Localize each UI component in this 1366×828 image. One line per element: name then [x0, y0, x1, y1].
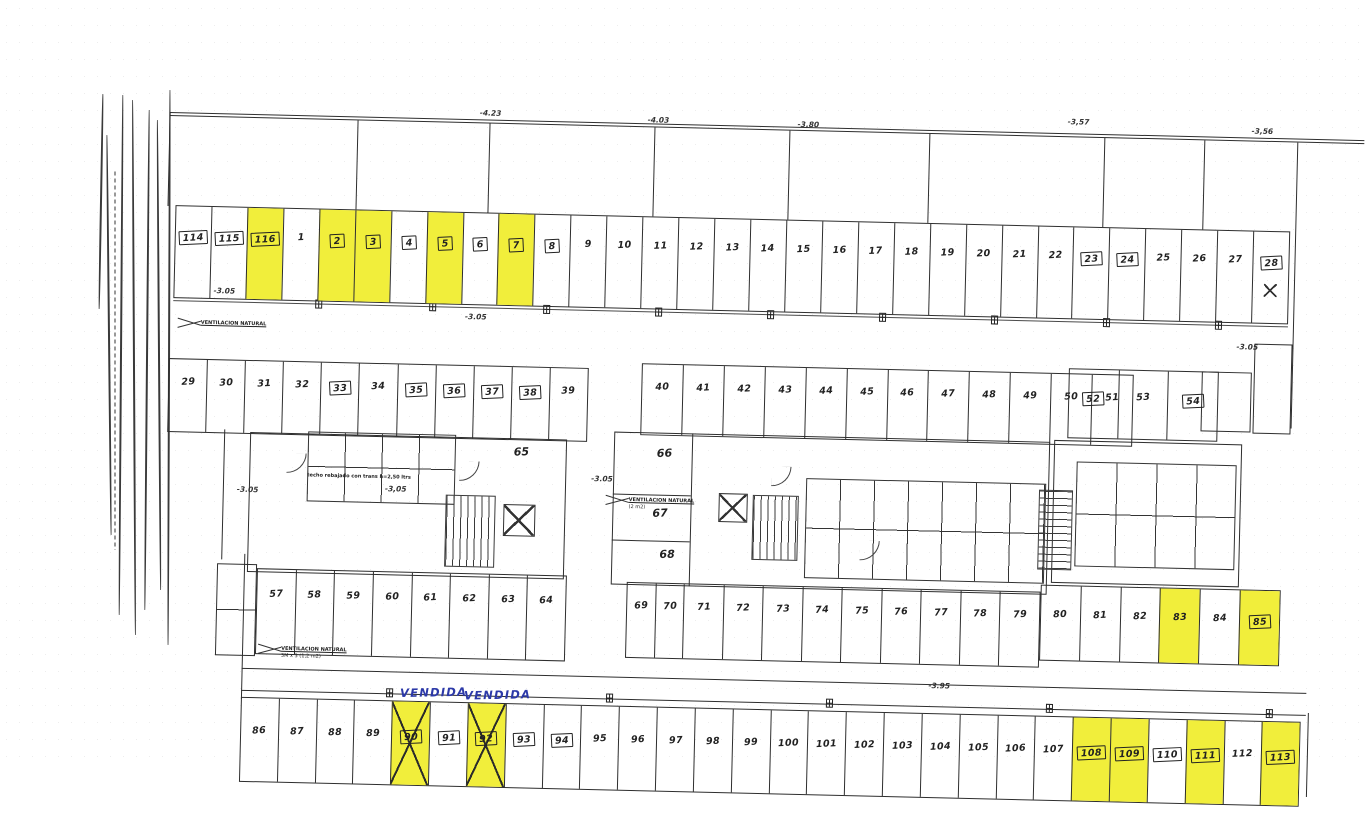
parking-stall-59: 59 — [332, 571, 373, 656]
parking-stall-105: 105 — [958, 715, 998, 799]
storage-rooms-grid — [307, 431, 457, 504]
stall-number: 58 — [308, 590, 322, 600]
parking-stall-83: 83 — [1159, 588, 1201, 663]
parking-stall-88: 88 — [315, 700, 355, 784]
parking-stall-38: 38 — [510, 367, 550, 440]
elevation-label-text: -3,05 — [385, 484, 407, 494]
stall-number: 36 — [443, 383, 466, 398]
column-marker — [826, 699, 833, 708]
bottom-right-wall — [1306, 713, 1309, 797]
stall-number: 87 — [290, 727, 304, 737]
parking-stall-36: 36 — [434, 365, 474, 438]
stall-number: 111 — [1190, 748, 1220, 763]
stall-row-top-1-28: 1141151161234567891011121314151617181920… — [173, 205, 1290, 324]
parking-stall-116: 116 — [245, 208, 283, 300]
parking-stall-62: 62 — [448, 574, 489, 659]
stall-number: 70 — [663, 602, 677, 612]
elevation-label-text: -4.03 — [648, 115, 670, 125]
stall-number: 24 — [1116, 252, 1139, 267]
stall-number: 54 — [1182, 394, 1205, 409]
stall-number: 26 — [1192, 254, 1206, 264]
parking-stall-60: 60 — [371, 572, 412, 657]
stall-number: 107 — [1043, 745, 1064, 755]
stall-number: 34 — [371, 382, 385, 392]
parking-stall-11: 11 — [640, 217, 678, 309]
stall-number: 83 — [1173, 613, 1187, 623]
note-ventilation-text: VENTILACION NATURAL — [201, 320, 267, 328]
note-ventilation-subtext: 3M x 3 (1,2 m2) — [281, 652, 347, 660]
stall-number: 96 — [631, 735, 645, 745]
parking-stall-41: 41 — [681, 365, 724, 436]
stall-number: 18 — [905, 247, 919, 257]
stall-number: 41 — [696, 383, 710, 393]
scan-line — [98, 94, 103, 309]
stall-number: 110 — [1152, 747, 1182, 762]
stall-number: 101 — [816, 739, 837, 749]
parking-stall-113: 113 — [1260, 722, 1300, 806]
stall-number: 52 — [1082, 391, 1105, 406]
stall-number: 74 — [815, 605, 829, 615]
elevator-shaft — [718, 493, 748, 523]
scan-line — [144, 110, 150, 610]
parking-stall-18: 18 — [892, 223, 930, 315]
stall-number: 19 — [941, 248, 955, 258]
storage-rooms-grid — [1074, 461, 1236, 570]
parking-stall-90: 90 — [390, 701, 430, 785]
parking-stall-85: 85 — [1238, 590, 1280, 665]
parking-stall-21: 21 — [1000, 226, 1038, 318]
parking-stall-73: 73 — [761, 586, 802, 661]
note-ventilation: VENTILACION NATURAL(2 m2) — [628, 497, 694, 512]
parking-stall-78: 78 — [959, 591, 1000, 666]
parking-stall-89: 89 — [352, 701, 392, 785]
stall-number: 28 — [1260, 255, 1283, 270]
stall-number: 86 — [252, 726, 266, 736]
parking-stall-45: 45 — [845, 369, 888, 440]
stall-number: 5 — [437, 236, 453, 251]
parking-stall-26: 26 — [1179, 230, 1217, 322]
parking-stall-5: 5 — [425, 212, 463, 304]
stall-row-bottom-86-113: 8687888990919293949596979899100101102103… — [239, 697, 1301, 807]
elevation-label-text: -4.23 — [480, 108, 502, 118]
stall-number: 63 — [501, 595, 515, 605]
room-label-65: 65 — [514, 446, 530, 457]
stall-number: 22 — [1048, 251, 1062, 261]
parking-stall-54: 54 — [1167, 372, 1218, 441]
parking-stall-30: 30 — [205, 360, 245, 433]
stall-number: 32 — [295, 380, 309, 390]
stall-number: 112 — [1232, 749, 1253, 759]
parking-stall-97: 97 — [655, 708, 695, 792]
stall-number: 81 — [1093, 611, 1107, 621]
parking-stall-33: 33 — [320, 363, 360, 436]
parking-stall-93: 93 — [504, 704, 544, 788]
stall-number: 40 — [655, 382, 669, 392]
stall-number: 97 — [668, 736, 682, 746]
stall-number: 9 — [585, 240, 592, 250]
parking-stall-103: 103 — [882, 713, 922, 797]
parking-stall-77: 77 — [919, 590, 960, 665]
parking-stall-14: 14 — [748, 220, 786, 312]
wall-stud — [652, 127, 655, 216]
utility-cell — [215, 563, 257, 656]
stall-number: 16 — [833, 246, 847, 256]
stall-number: 85 — [1248, 614, 1271, 629]
parking-stall-44: 44 — [804, 368, 847, 439]
elevation-label: -3.05 — [237, 486, 259, 494]
stall-number: 99 — [744, 738, 758, 748]
stall-number: 76 — [894, 607, 908, 617]
parking-stall-1: 1 — [281, 209, 319, 301]
room-label-66: 66 — [657, 448, 673, 459]
elevation-label: -3,05 — [385, 485, 407, 493]
parking-stall-92: 92 — [466, 703, 506, 787]
parking-stall-104: 104 — [920, 714, 960, 798]
parking-stall-107: 107 — [1033, 717, 1073, 801]
parking-stall-32: 32 — [281, 362, 321, 435]
stall-number: 72 — [736, 603, 750, 613]
parking-stall-101: 101 — [806, 711, 846, 795]
parking-stall-70: 70 — [654, 584, 684, 659]
parking-stall-94: 94 — [542, 705, 582, 789]
stall-number: 78 — [973, 609, 987, 619]
parking-stall-34: 34 — [358, 364, 398, 437]
parking-stall-19: 19 — [928, 224, 966, 316]
stall-number: 79 — [1013, 610, 1027, 620]
stairs — [1037, 490, 1073, 571]
stall-number: 59 — [346, 591, 360, 601]
parking-stall-29: 29 — [168, 359, 207, 432]
elevation-label-text: -3,56 — [1251, 126, 1273, 136]
stall-number: 3 — [365, 234, 381, 249]
elevation-label: -3,57 — [1068, 118, 1090, 126]
parking-stall-96: 96 — [617, 707, 657, 791]
parking-stall-86: 86 — [240, 698, 279, 782]
parking-stall-81: 81 — [1079, 587, 1121, 662]
stall-number: 108 — [1077, 745, 1107, 760]
stall-number: 69 — [634, 601, 648, 611]
parking-stall-99: 99 — [731, 709, 771, 793]
parking-stall-15: 15 — [784, 221, 822, 313]
parking-stall-80: 80 — [1040, 586, 1081, 661]
parking-stall-48: 48 — [968, 372, 1011, 443]
right-boundary-wall — [1291, 143, 1299, 429]
stall-number: 48 — [982, 390, 996, 400]
handwritten-vendida: VENDIDA — [400, 687, 467, 700]
stall-number: 10 — [617, 240, 631, 250]
stall-number: 47 — [941, 389, 955, 399]
parking-stall-49: 49 — [1008, 373, 1051, 444]
stall-number: 116 — [250, 232, 280, 247]
stall-number: 17 — [869, 246, 883, 256]
room-label-65-text: 65 — [514, 445, 530, 458]
stall-number: 77 — [934, 608, 948, 618]
parking-stall-8: 8 — [533, 215, 571, 307]
stall-number: 61 — [423, 593, 437, 603]
parking-stall-76: 76 — [880, 589, 921, 664]
elevation-label: -3,80 — [798, 121, 820, 129]
parking-stall-6: 6 — [461, 213, 499, 305]
stall-number: 71 — [697, 602, 711, 612]
parking-stall-53: 53 — [1117, 370, 1168, 439]
stall-number: 8 — [545, 239, 561, 254]
parking-stall-42: 42 — [722, 366, 765, 437]
elevation-label: -3.05 — [1236, 343, 1258, 351]
stall-number: 80 — [1053, 610, 1067, 620]
stall-number: 13 — [725, 243, 739, 253]
room-label-68-text: 68 — [659, 548, 675, 561]
parking-stall-79: 79 — [998, 592, 1039, 667]
parking-stall-109: 109 — [1109, 718, 1149, 802]
wall-stud — [927, 134, 930, 223]
parking-stall-100: 100 — [768, 710, 808, 794]
scanned-sheet: 1141151161234567891011121314151617181920… — [0, 0, 1366, 768]
parking-stall-64: 64 — [525, 576, 566, 661]
scan-line — [106, 135, 112, 535]
note-ventilation: VENTILACION NATURAL — [201, 320, 267, 328]
stall-number: 84 — [1213, 614, 1227, 624]
parking-stall-82: 82 — [1119, 588, 1161, 663]
parking-stall-39: 39 — [548, 368, 588, 441]
stall-number: 1 — [297, 233, 304, 243]
parking-stall-111: 111 — [1184, 720, 1224, 804]
parking-stall-17: 17 — [856, 222, 894, 314]
column-marker — [606, 693, 613, 702]
stall-number: 109 — [1114, 746, 1144, 761]
stall-number: 12 — [689, 242, 703, 252]
parking-stall-102: 102 — [844, 712, 884, 796]
stairs — [751, 495, 799, 561]
parking-stall-98: 98 — [693, 709, 733, 793]
stall-number: 57 — [269, 589, 283, 599]
note-ventilation: VENTILACION NATURAL3M x 3 (1,2 m2) — [281, 646, 347, 661]
parking-stall-47: 47 — [927, 371, 970, 442]
parking-stall-31: 31 — [243, 361, 283, 434]
stall-number: 102 — [854, 740, 875, 750]
column-marker — [1046, 704, 1053, 713]
stall-number: 92 — [475, 731, 498, 746]
stall-row-69-79: 6970717273747576777879 — [625, 582, 1041, 668]
parking-stall-87: 87 — [277, 699, 317, 783]
wall-stud — [355, 120, 358, 209]
parking-stall-16: 16 — [820, 221, 858, 313]
stall-number: 91 — [437, 730, 460, 745]
stall-number: 113 — [1266, 750, 1296, 765]
parking-stall-37: 37 — [472, 366, 512, 439]
parking-stall-69: 69 — [626, 583, 655, 658]
parking-stall-61: 61 — [409, 573, 450, 658]
elevation-label-text: -3.05 — [213, 286, 235, 296]
stall-number: 44 — [819, 386, 833, 396]
stall-row-29-39: 2930313233343536373839 — [167, 358, 589, 442]
handwritten-vendida-text: VENDIDA — [464, 687, 531, 702]
stall-row-40-51: 404142434445464748495051 — [640, 363, 1134, 447]
room-label-68: 68 — [659, 549, 675, 560]
elevation-label: -3.05 — [591, 475, 613, 483]
column-marker — [386, 688, 393, 697]
elevation-label-text: -3,57 — [1068, 117, 1090, 127]
stall-number: 6 — [473, 237, 489, 252]
stall-number: 104 — [930, 742, 951, 752]
stall-row-52-54: 525354 — [1067, 368, 1219, 442]
stall-number: 94 — [551, 733, 574, 748]
parking-stall-74: 74 — [801, 587, 842, 662]
column-marker — [1266, 709, 1273, 718]
stall-number: 29 — [181, 377, 195, 387]
elevation-label-text: -3.05 — [591, 474, 613, 484]
elevation-label-text: -3.05 — [1236, 342, 1258, 352]
parking-stall-91: 91 — [428, 702, 468, 786]
parking-stall-115: 115 — [209, 207, 247, 299]
wall-stud — [487, 124, 490, 213]
elevation-label: -3.05 — [465, 313, 487, 321]
parking-stall-25: 25 — [1143, 229, 1181, 321]
elevation-label: -4.23 — [480, 109, 502, 117]
stall-number: 35 — [405, 382, 428, 397]
stall-number: 46 — [901, 388, 915, 398]
stall-number: 93 — [513, 732, 536, 747]
stall-number: 2 — [329, 234, 345, 249]
stall-number: 75 — [855, 606, 869, 616]
stall-number: 39 — [562, 386, 576, 396]
stall-number: 15 — [797, 245, 811, 255]
parking-stall-108: 108 — [1071, 717, 1111, 801]
elevation-label-text: -3.95 — [928, 681, 950, 691]
stall-number: 31 — [257, 379, 271, 389]
stall-number: 106 — [1005, 744, 1026, 754]
stall-number: 62 — [462, 594, 476, 604]
stall-number: 42 — [737, 384, 751, 394]
stall-number: 64 — [539, 596, 553, 606]
scan-line — [132, 100, 136, 635]
stall-number: 33 — [329, 381, 352, 396]
stall-number: 23 — [1080, 251, 1103, 266]
elevation-label-text: -3,80 — [797, 120, 819, 130]
floor-plan: 1141151161234567891011121314151617181920… — [154, 100, 1366, 828]
stall-number: 25 — [1156, 253, 1170, 263]
elevation-label-text: -3.05 — [465, 312, 487, 322]
parking-stall-43: 43 — [763, 367, 806, 438]
scan-line — [118, 95, 123, 615]
parking-stall-13: 13 — [712, 219, 750, 311]
parking-stall-10: 10 — [604, 216, 642, 308]
wall-stud — [1202, 140, 1205, 229]
stall-number: 20 — [976, 249, 990, 259]
parking-stall-95: 95 — [579, 706, 619, 790]
stall-number: 103 — [892, 741, 913, 751]
parking-stall-7: 7 — [497, 214, 535, 306]
stairs — [444, 495, 496, 568]
stall-number: 7 — [509, 238, 525, 253]
parking-stall-9: 9 — [569, 215, 607, 307]
parking-stall-72: 72 — [722, 585, 763, 660]
parking-stall-63: 63 — [487, 575, 528, 660]
core-left-outer-wall — [221, 429, 225, 559]
stall-number: 90 — [399, 729, 422, 744]
parking-stall-84: 84 — [1198, 589, 1240, 664]
parking-stall-20: 20 — [964, 225, 1002, 317]
stall-number: 14 — [761, 244, 775, 254]
parking-stall-24: 24 — [1107, 228, 1145, 320]
parking-stall-46: 46 — [886, 370, 929, 441]
elevation-label: -3.95 — [928, 682, 950, 690]
parking-stall-35: 35 — [396, 364, 436, 437]
parking-stall-52: 52 — [1068, 369, 1118, 438]
parking-stall-12: 12 — [676, 218, 714, 310]
top-boundary-wall — [170, 112, 1365, 144]
wall-stud — [787, 131, 790, 220]
stall-number: 43 — [778, 385, 792, 395]
parking-stall-112: 112 — [1222, 721, 1262, 805]
parking-stall-22: 22 — [1036, 226, 1074, 318]
stall-number: 21 — [1012, 250, 1026, 260]
stall-number: 37 — [481, 384, 504, 399]
stall-number: 49 — [1023, 391, 1037, 401]
elevation-label-text: -3.05 — [237, 485, 259, 495]
stall-number: 30 — [219, 378, 233, 388]
stall-number: 88 — [328, 728, 342, 738]
utility-cell — [1252, 344, 1292, 435]
stall-number: 4 — [401, 235, 417, 250]
parking-stall-27: 27 — [1215, 231, 1253, 323]
elevation-label: -3,56 — [1251, 127, 1273, 135]
stall-number: 82 — [1133, 612, 1147, 622]
parking-stall-2: 2 — [317, 210, 355, 302]
parking-stall-57: 57 — [256, 569, 296, 654]
parking-stall-23: 23 — [1072, 227, 1110, 319]
wall-stud — [1102, 138, 1105, 227]
storage-rooms-grid — [804, 478, 1046, 584]
stall-row-80-85: 808182838485 — [1039, 585, 1281, 667]
stall-number: 60 — [385, 592, 399, 602]
parking-stall-75: 75 — [840, 588, 881, 663]
parking-stall-106: 106 — [995, 716, 1035, 800]
stall-number: 115 — [214, 231, 244, 246]
stall-number: 38 — [519, 385, 542, 400]
parking-stall-4: 4 — [389, 211, 427, 303]
room-label-66-text: 66 — [657, 447, 673, 460]
parking-stall-58: 58 — [294, 570, 335, 655]
stall-number: 98 — [706, 737, 720, 747]
stall-number: 95 — [593, 734, 607, 744]
stall-number: 27 — [1228, 255, 1242, 265]
handwritten-vendida: VENDIDA — [464, 689, 531, 702]
scan-dotted-line — [114, 170, 116, 550]
handwritten-vendida-text: VENDIDA — [400, 685, 467, 700]
stall-number: 45 — [860, 387, 874, 397]
elevator-shaft — [503, 504, 536, 537]
stall-number: 105 — [967, 743, 988, 753]
stall-number: 100 — [778, 738, 799, 748]
stall-number: 73 — [776, 604, 790, 614]
parking-stall-28: 28 — [1251, 232, 1289, 324]
stall-number: 53 — [1136, 393, 1150, 403]
elevation-label: -4.03 — [648, 116, 670, 124]
stall-number: 114 — [178, 230, 208, 245]
parking-stall-114: 114 — [174, 206, 211, 298]
parking-stall-3: 3 — [353, 210, 391, 302]
parking-stall-71: 71 — [682, 584, 723, 659]
elevation-label: -3.05 — [213, 287, 235, 295]
parking-stall-110: 110 — [1147, 719, 1187, 803]
stall-number: 11 — [653, 241, 667, 251]
parking-stall-40: 40 — [641, 364, 683, 435]
stall-number: 89 — [366, 729, 380, 739]
